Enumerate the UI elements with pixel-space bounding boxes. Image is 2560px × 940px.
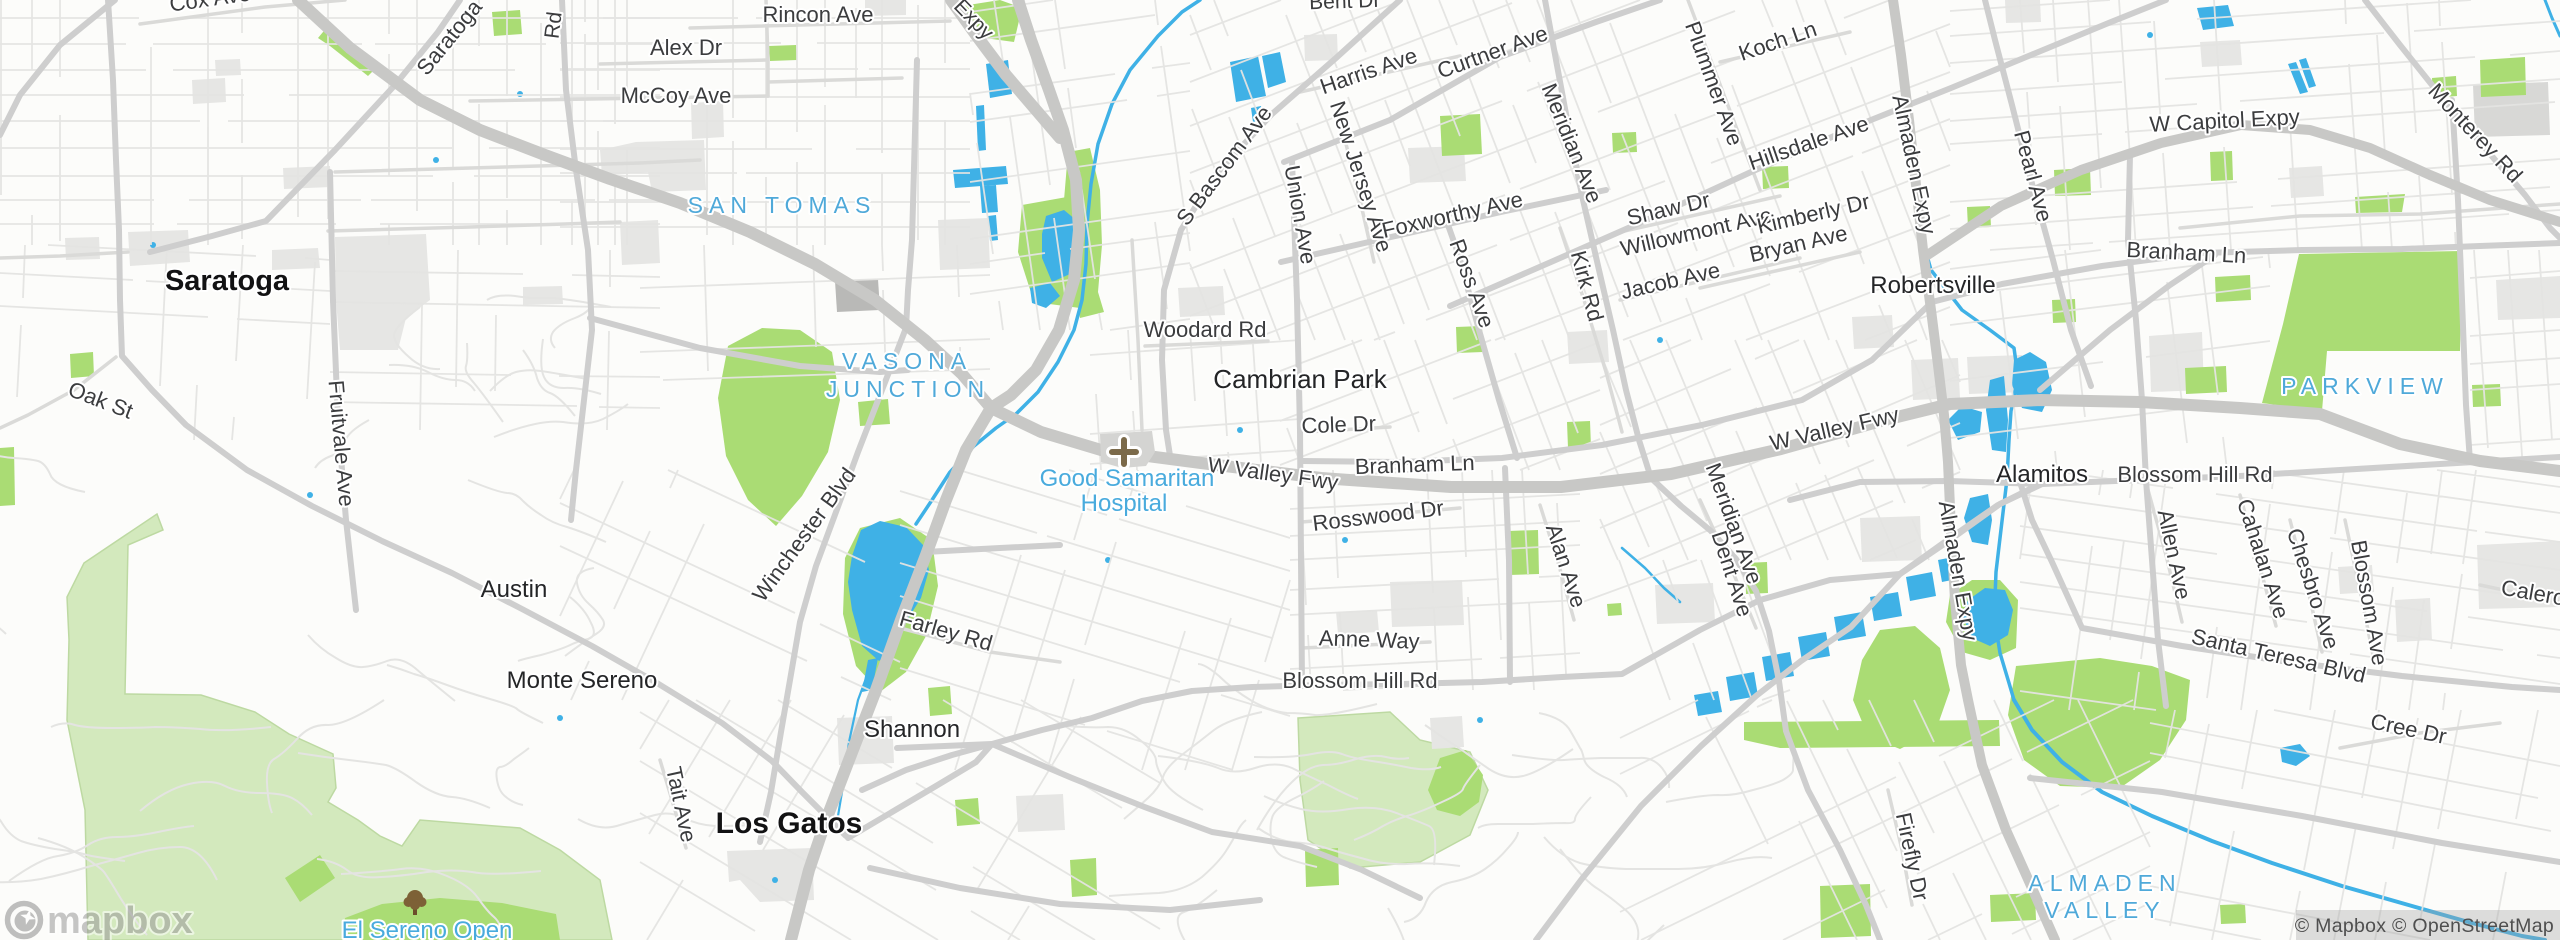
svg-text:Robertsville: Robertsville [1870, 272, 1995, 299]
svg-text:VASONA: VASONA [842, 348, 972, 374]
svg-text:Hospital: Hospital [1081, 490, 1168, 517]
svg-text:Rd: Rd [540, 10, 566, 39]
svg-text:El Sereno Open: El Sereno Open [342, 917, 513, 940]
svg-text:Good Samaritan: Good Samaritan [1040, 465, 1215, 492]
svg-text:Austin: Austin [481, 576, 548, 603]
svg-text:Los Gatos: Los Gatos [716, 807, 863, 840]
svg-text:Cole Dr: Cole Dr [1301, 411, 1376, 439]
svg-text:Blossom Hill Rd: Blossom Hill Rd [1282, 668, 1437, 693]
svg-text:Cambrian Park: Cambrian Park [1213, 364, 1387, 394]
svg-text:Alamitos: Alamitos [1996, 461, 2088, 488]
svg-text:Rincon Ave: Rincon Ave [763, 2, 874, 27]
svg-text:ALMADEN: ALMADEN [2028, 870, 2181, 896]
svg-text:VALLEY: VALLEY [2044, 897, 2165, 923]
svg-text:Branham Ln: Branham Ln [1354, 450, 1475, 479]
svg-text:JUNCTION: JUNCTION [826, 376, 990, 402]
svg-text:Blossom Hill Rd: Blossom Hill Rd [2117, 462, 2272, 487]
svg-text:Monte Sereno: Monte Sereno [507, 667, 658, 694]
svg-text:Woodard Rd: Woodard Rd [1143, 317, 1266, 342]
svg-text:mapbox: mapbox [47, 900, 193, 940]
svg-text:Anne Way: Anne Way [1319, 625, 1420, 653]
svg-text:Alex Dr: Alex Dr [650, 35, 722, 60]
svg-text:McCoy Ave: McCoy Ave [621, 83, 732, 108]
svg-text:Shannon: Shannon [864, 716, 960, 743]
svg-text:Saratoga: Saratoga [165, 265, 290, 297]
svg-text:PARKVIEW: PARKVIEW [2281, 373, 2449, 399]
svg-text:Bent Dr: Bent Dr [1309, 0, 1381, 14]
svg-text:© Mapbox © OpenStreetMap: © Mapbox © OpenStreetMap [2295, 915, 2554, 937]
svg-text:SAN TOMAS: SAN TOMAS [688, 192, 877, 218]
